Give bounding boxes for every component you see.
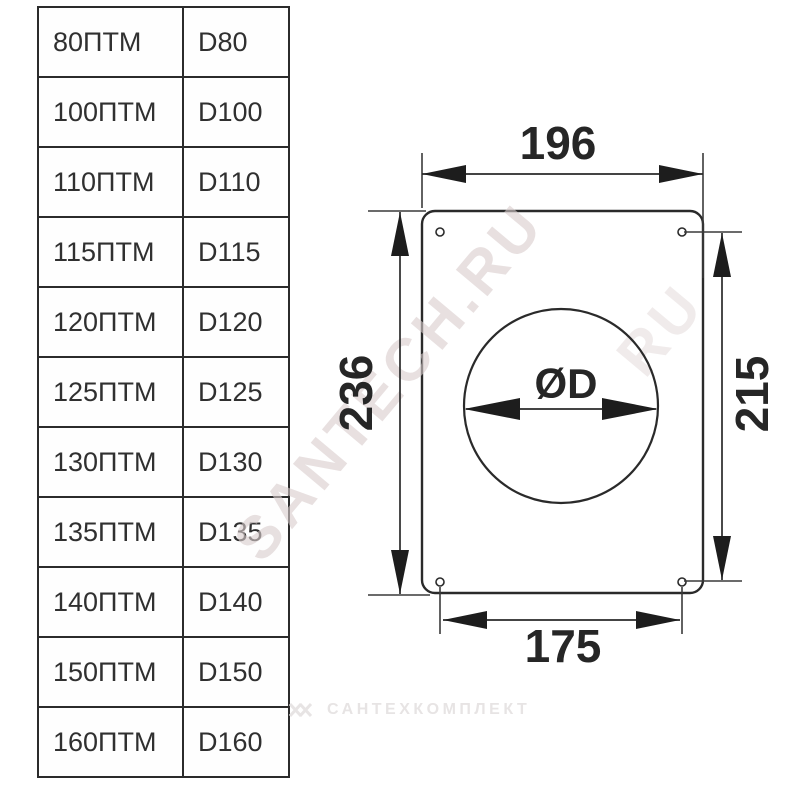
dim-bottom-width: 175 xyxy=(440,587,682,672)
arrowhead-left xyxy=(422,165,466,183)
arrowhead-right xyxy=(659,165,703,183)
dim-label-196: 196 xyxy=(520,117,597,169)
arrowhead-left xyxy=(443,611,487,629)
product-spec-image: 80ПТМ D80 100ПТМ D100 110ПТМ D110 115ПТМ… xyxy=(0,0,800,800)
dim-label-175: 175 xyxy=(525,620,602,672)
arrowhead-up xyxy=(391,212,409,256)
arrowhead-down xyxy=(713,536,731,580)
corner-hole-top-left xyxy=(436,228,444,236)
technical-drawing: SANTECH.RU RU 196 236 xyxy=(0,0,800,800)
arrowhead-down xyxy=(391,550,409,594)
santechkomplekt-logo-icon xyxy=(288,702,318,718)
dim-left-height: 236 xyxy=(330,211,430,595)
dim-label-236: 236 xyxy=(330,355,382,432)
arrowhead-up xyxy=(713,233,731,277)
corner-hole-bottom-left xyxy=(436,578,444,586)
dim-label-hole-diameter: ØD xyxy=(535,360,598,407)
dim-label-215: 215 xyxy=(726,356,778,433)
corner-hole-bottom-right xyxy=(678,578,686,586)
bottom-watermark-text: САНТЕХКОМПЛЕКТ xyxy=(327,701,530,719)
arrowhead-right xyxy=(636,611,680,629)
bottom-watermark: САНТЕХКОМПЛЕКТ xyxy=(288,701,530,719)
